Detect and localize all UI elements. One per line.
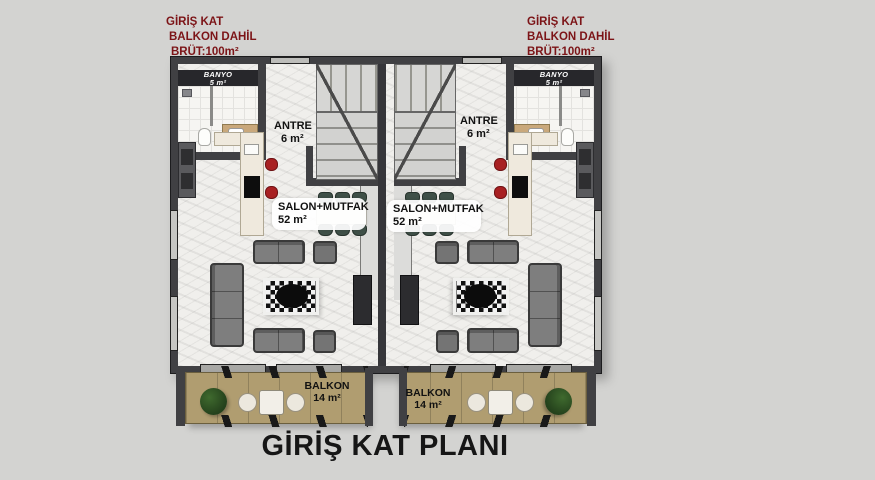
kitchen-sink xyxy=(513,144,528,155)
patio-table xyxy=(488,390,513,415)
room-name: ANTRE xyxy=(460,115,498,128)
armchair xyxy=(435,241,459,264)
balcony-railing-posts xyxy=(404,366,587,378)
shower-fixture xyxy=(580,89,590,97)
fridge xyxy=(579,173,591,189)
room-label-banyo-right: BANYO 5 m² xyxy=(514,71,594,87)
room-area: 5 m² xyxy=(178,79,258,87)
room-label-antre-right: ANTRE 6 m² xyxy=(460,115,498,141)
room-area: 14 m² xyxy=(393,399,463,411)
room-name: SALON+MUTFAK xyxy=(278,201,366,214)
room-label-salon-right: SALON+MUTFAK 52 m² xyxy=(387,200,481,232)
room-name: SALON+MUTFAK xyxy=(393,203,481,216)
annotation-line: GİRİŞ KAT xyxy=(166,15,257,30)
toilet xyxy=(561,128,574,146)
room-area: 6 m² xyxy=(274,133,312,146)
annotation-line: GİRİŞ KAT xyxy=(527,15,615,30)
kitchen-appliance-block xyxy=(576,142,594,198)
window xyxy=(594,296,602,351)
room-label-balkon-right: BALKON 14 m² xyxy=(393,387,463,411)
shower-glass-partition xyxy=(559,86,562,126)
patio-chair xyxy=(515,393,534,412)
room-name: ANTRE xyxy=(274,120,312,133)
annotation-line: BRÜT:100m² xyxy=(527,45,615,60)
room-area: 14 m² xyxy=(292,392,362,404)
page-title: GİRİŞ KAT PLANI xyxy=(180,431,590,462)
annotation-line: BALKON DAHİL xyxy=(166,30,257,45)
loveseat-bottom xyxy=(467,328,519,353)
room-name: BALKON xyxy=(393,387,463,399)
room-label-banyo-left: BANYO 5 m² xyxy=(178,71,258,87)
room-label-salon-left: SALON+MUTFAK 52 m² xyxy=(272,198,366,230)
tv-unit xyxy=(400,275,419,325)
window xyxy=(594,210,602,260)
room-label-antre-left: ANTRE 6 m² xyxy=(274,120,312,146)
room-area: 5 m² xyxy=(514,79,594,87)
kitchen-counter-arm xyxy=(530,132,558,146)
potted-plant xyxy=(545,388,572,415)
room-name: BALKON xyxy=(292,380,362,392)
balcony-railing-posts xyxy=(404,415,587,427)
annotation-line: BRÜT:100m² xyxy=(166,45,257,60)
armchair xyxy=(436,330,459,353)
room-area: 52 m² xyxy=(393,216,481,229)
gross-area-annotation-right: GİRİŞ KAT BALKON DAHİL BRÜT:100m² xyxy=(527,15,615,60)
floor-plan-page: BANYO 5 m² BANYO 5 m² ANTRE 6 m² ANTRE 6… xyxy=(0,0,875,480)
patio-chair xyxy=(467,393,486,412)
loveseat-top xyxy=(467,240,519,264)
cooktop xyxy=(512,176,528,198)
annotation-line: BALKON DAHİL xyxy=(527,30,615,45)
stair-stub-wall xyxy=(459,146,466,186)
bar-stool xyxy=(494,158,507,171)
room-label-balkon-left: BALKON 14 m² xyxy=(292,380,362,404)
entry-door xyxy=(462,57,502,64)
bar-stool xyxy=(494,186,507,199)
balcony-side-wall xyxy=(587,368,596,426)
staircase-direction-line xyxy=(394,64,456,180)
oven xyxy=(579,149,591,165)
long-sofa xyxy=(528,263,562,347)
gross-area-annotation-left: GİRİŞ KAT BALKON DAHİL BRÜT:100m² xyxy=(166,15,257,60)
room-area: 52 m² xyxy=(278,214,366,227)
unit-right-furniture xyxy=(170,56,602,428)
room-area: 6 m² xyxy=(460,128,498,141)
coffee-table xyxy=(464,284,496,308)
